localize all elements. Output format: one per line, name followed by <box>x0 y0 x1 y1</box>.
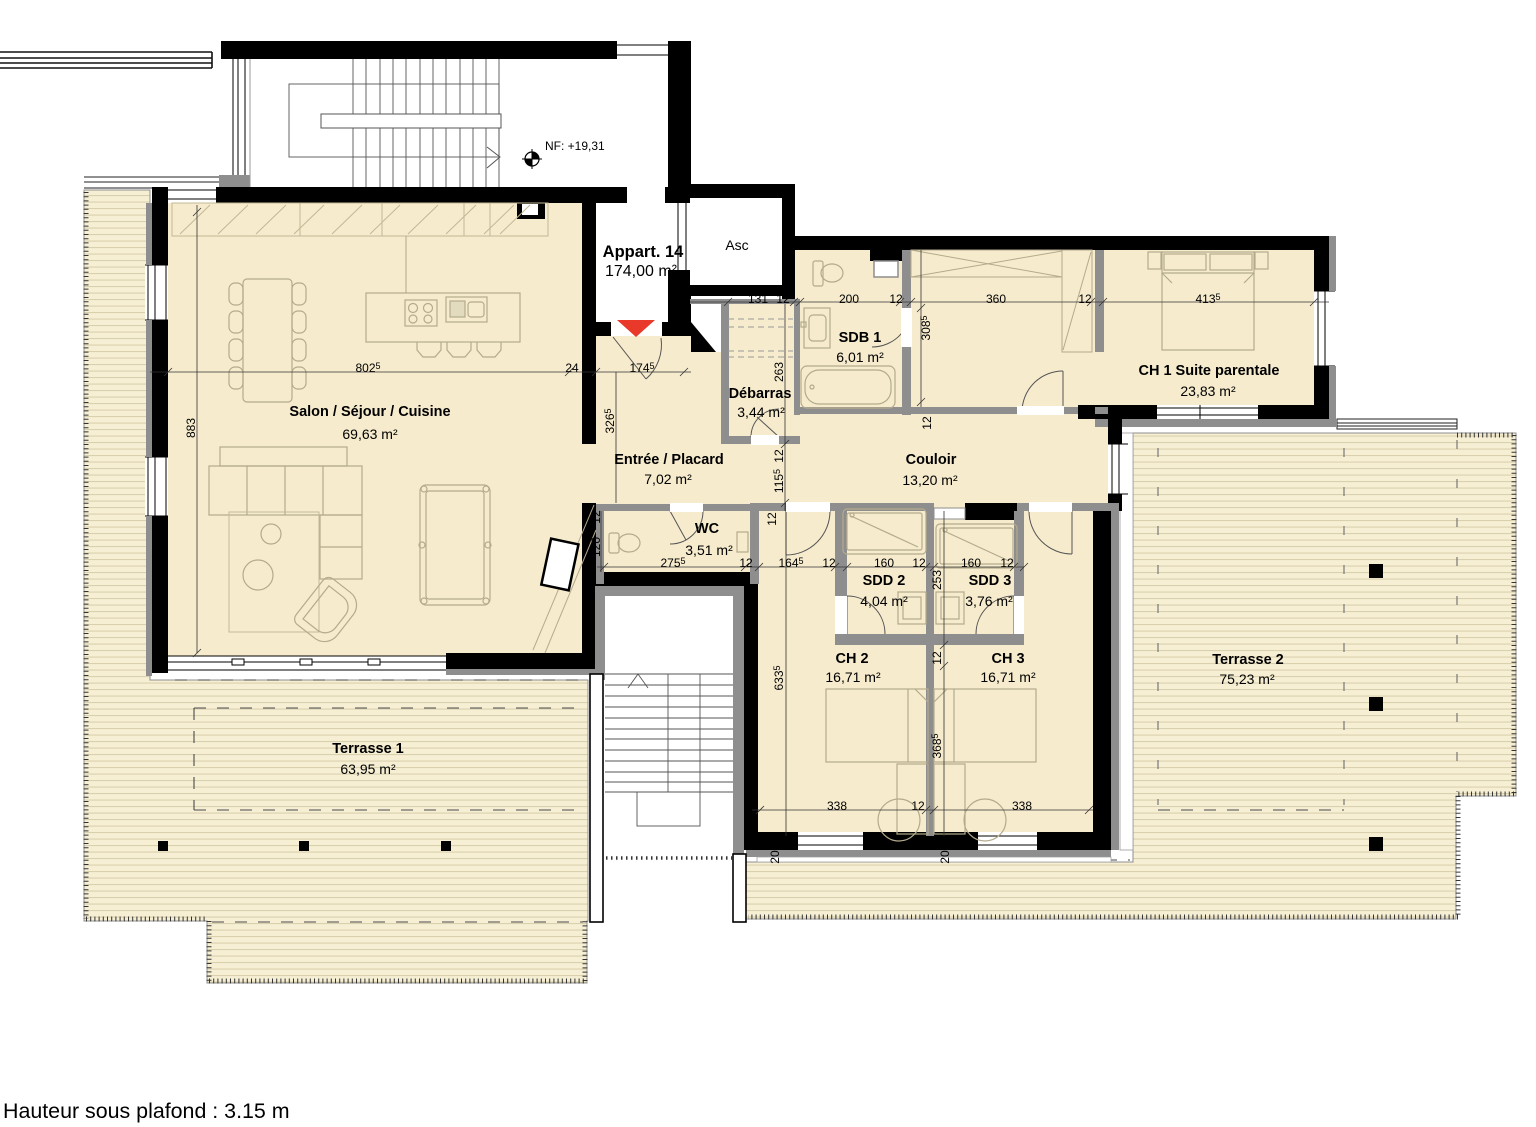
svg-text:20: 20 <box>768 850 782 864</box>
svg-text:Entrée / Placard: Entrée / Placard <box>614 452 724 468</box>
svg-text:WC: WC <box>695 521 720 537</box>
svg-text:SDD 2: SDD 2 <box>863 573 906 589</box>
svg-text:12: 12 <box>822 556 836 570</box>
svg-text:20: 20 <box>938 850 952 864</box>
svg-text:12: 12 <box>772 449 786 463</box>
svg-text:160: 160 <box>961 556 981 570</box>
svg-text:Terrasse 1: Terrasse 1 <box>332 741 403 757</box>
svg-text:360: 360 <box>986 292 1006 306</box>
svg-text:CH 3: CH 3 <box>991 651 1024 667</box>
svg-text:12: 12 <box>911 799 925 813</box>
svg-text:16,71 m²: 16,71 m² <box>825 669 881 685</box>
svg-text:Salon / Séjour / Cuisine: Salon / Séjour / Cuisine <box>289 404 450 420</box>
svg-text:12: 12 <box>920 416 934 430</box>
svg-text:NF: +19,31: NF: +19,31 <box>545 139 605 153</box>
svg-text:3,51 m²: 3,51 m² <box>685 542 733 558</box>
svg-text:131: 131 <box>748 292 768 306</box>
svg-text:69,63 m²: 69,63 m² <box>342 426 398 442</box>
svg-text:Débarras: Débarras <box>729 386 792 402</box>
svg-text:160: 160 <box>874 556 894 570</box>
svg-text:12: 12 <box>1078 292 1092 306</box>
svg-text:253: 253 <box>930 570 944 590</box>
svg-text:SDD 3: SDD 3 <box>969 573 1012 589</box>
svg-text:12: 12 <box>776 292 790 306</box>
svg-text:7,02 m²: 7,02 m² <box>644 471 692 487</box>
svg-text:6,01 m²: 6,01 m² <box>836 349 884 365</box>
svg-text:12: 12 <box>912 556 926 570</box>
svg-text:338: 338 <box>1012 799 1032 813</box>
svg-text:3,76 m²: 3,76 m² <box>965 593 1013 609</box>
svg-text:13,20 m²: 13,20 m² <box>902 472 958 488</box>
svg-text:263: 263 <box>772 362 786 382</box>
svg-text:24: 24 <box>565 361 579 375</box>
svg-text:883: 883 <box>184 418 198 438</box>
svg-text:Appart. 14: Appart. 14 <box>603 243 685 261</box>
svg-text:12: 12 <box>930 651 944 665</box>
svg-text:63,95 m²: 63,95 m² <box>340 761 396 777</box>
svg-text:75,23 m²: 75,23 m² <box>1219 671 1275 687</box>
svg-text:12: 12 <box>889 292 903 306</box>
svg-text:Terrasse 2: Terrasse 2 <box>1212 652 1283 668</box>
svg-text:3,44 m²: 3,44 m² <box>737 404 785 420</box>
svg-text:12: 12 <box>589 510 603 524</box>
svg-text:4,04 m²: 4,04 m² <box>860 593 908 609</box>
svg-text:338: 338 <box>827 799 847 813</box>
svg-text:Asc: Asc <box>725 237 748 253</box>
svg-text:16,71 m²: 16,71 m² <box>980 669 1036 685</box>
svg-text:23,83 m²: 23,83 m² <box>1180 383 1236 399</box>
svg-text:174,00 m²: 174,00 m² <box>605 263 678 280</box>
svg-text:12: 12 <box>739 556 753 570</box>
svg-text:12: 12 <box>765 512 779 526</box>
svg-text:CH 2: CH 2 <box>835 651 868 667</box>
svg-text:CH 1 Suite parentale: CH 1 Suite parentale <box>1138 363 1279 379</box>
svg-text:12: 12 <box>1000 556 1014 570</box>
svg-text:SDB 1: SDB 1 <box>839 330 882 346</box>
svg-text:Hauteur sous plafond : 3.15 m: Hauteur sous plafond : 3.15 m <box>3 1099 290 1123</box>
svg-text:Couloir: Couloir <box>906 452 957 468</box>
svg-text:120: 120 <box>589 537 603 557</box>
svg-text:200: 200 <box>839 292 859 306</box>
